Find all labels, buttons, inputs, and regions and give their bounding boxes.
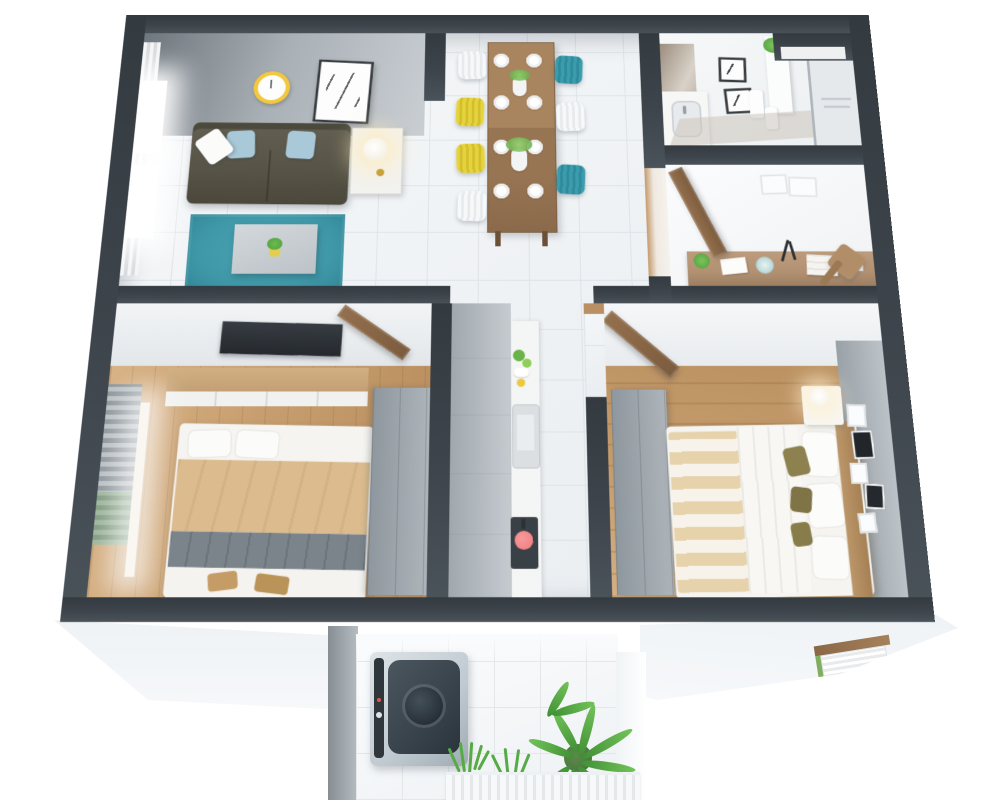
- pan-handle: [521, 519, 525, 529]
- kitchen-corridor: [448, 303, 590, 597]
- bathroom: [659, 33, 862, 145]
- grass-plant: [448, 732, 488, 776]
- sofa: [186, 122, 351, 205]
- apartment-plan: [60, 15, 935, 622]
- bed1-tan-blanket: [171, 459, 370, 534]
- hallway-study: [665, 165, 876, 286]
- flower-sprigs: [506, 137, 533, 151]
- kitchen-cabinets: [448, 303, 512, 597]
- cooktop: [511, 517, 539, 569]
- desk-plant: [693, 253, 710, 268]
- table-leg: [495, 231, 500, 246]
- faucet: [683, 106, 687, 115]
- doorway-corridor-bedroom2: [584, 303, 607, 397]
- dining-chair: [556, 164, 586, 195]
- blinds-plant-tint: [92, 492, 132, 545]
- sideboard-front: [165, 391, 368, 406]
- dining-chair: [456, 143, 485, 173]
- faint-wall-frame: [760, 174, 789, 195]
- counter-dish: [514, 368, 529, 377]
- washer-control-panel: [374, 658, 384, 758]
- place-setting: [527, 184, 543, 199]
- wall-mid-left: [117, 286, 450, 303]
- gallery-frame-dark: [865, 483, 886, 509]
- floor-plan-scene: [0, 0, 1000, 800]
- towel-rack: [824, 106, 850, 108]
- gallery-frame: [849, 463, 868, 484]
- cushion-blue: [285, 130, 316, 159]
- bed-2: [666, 423, 875, 599]
- counter-lemon: [517, 379, 526, 387]
- planter-box: [446, 772, 640, 800]
- wall-living-dining-stub: [424, 33, 446, 101]
- bed1-gray-throw: [168, 531, 367, 570]
- clock-hands: [270, 80, 272, 89]
- bed1-pillow: [234, 429, 281, 460]
- washer-drum: [402, 684, 446, 728]
- duct-shaft-inner: [781, 47, 846, 59]
- sideboard-top: [166, 368, 368, 392]
- counter-greens: [522, 359, 531, 368]
- bed1-pillow: [187, 429, 232, 459]
- place-setting: [527, 95, 543, 109]
- wall-top: [124, 15, 870, 33]
- wardrobe-2: [611, 390, 675, 596]
- washer-dial: [376, 712, 382, 718]
- flower-sprigs: [509, 70, 530, 81]
- dining-chair: [556, 102, 586, 131]
- faint-wall-frame: [788, 177, 818, 198]
- flower-vase: [511, 149, 527, 172]
- doorway-threshold-bedroom2: [584, 303, 605, 314]
- gallery-frame: [846, 404, 866, 427]
- tv-panel: [220, 321, 343, 356]
- bed2-olive-cushion: [790, 486, 812, 514]
- place-setting: [526, 54, 542, 68]
- kitchen-sink: [512, 404, 540, 468]
- wall-art: [312, 59, 374, 124]
- balcony-left-wall: [328, 626, 358, 800]
- balcony: [328, 616, 646, 800]
- art-bird-marks: [325, 72, 360, 109]
- foundation-slab-left: [52, 614, 344, 710]
- wall-dining-hall-lower: [649, 276, 672, 303]
- gallery-frame-dark: [851, 430, 876, 459]
- coffee-table: [231, 224, 317, 273]
- wall-bottom: [60, 597, 935, 622]
- towel-rack: [821, 98, 851, 100]
- bed-1: [163, 423, 374, 601]
- window-notch: [814, 634, 899, 682]
- desk-papers: [720, 257, 748, 275]
- grass-blade: [459, 742, 466, 772]
- gallery-frame: [857, 513, 877, 534]
- print-marks: [724, 63, 738, 74]
- wall-corridor-left: [426, 303, 451, 597]
- dining-chair: [554, 55, 583, 84]
- print-marks: [730, 94, 745, 106]
- decor-plate: [755, 257, 774, 274]
- dining-chair: [455, 97, 484, 126]
- washer-power-light: [377, 698, 381, 702]
- bathroom-print: [718, 57, 746, 82]
- bed1-foot-cushion: [207, 570, 238, 592]
- hallway-door: [668, 167, 727, 258]
- table-lamp: [363, 138, 388, 161]
- grass-blade: [448, 748, 461, 773]
- wall-bathroom-bottom: [664, 145, 863, 164]
- place-setting: [493, 184, 509, 199]
- dining-chair: [457, 191, 487, 222]
- living-room: [119, 33, 427, 286]
- wardrobe-1: [367, 388, 430, 595]
- wall-mid-right: [593, 286, 878, 303]
- dining-area: [442, 33, 649, 286]
- gold-decor: [376, 169, 384, 176]
- dining-chair: [458, 51, 486, 79]
- place-setting: [494, 54, 510, 68]
- side-table: [350, 128, 404, 195]
- bed2-striped-blanket: [668, 431, 749, 593]
- place-setting: [494, 95, 510, 109]
- red-pan: [515, 531, 534, 550]
- bedroom-1: [87, 303, 432, 597]
- table-leg: [542, 231, 548, 246]
- sink-basin: [517, 415, 534, 451]
- bed2-pillow-white: [811, 535, 851, 580]
- bedroom-2: [604, 303, 909, 597]
